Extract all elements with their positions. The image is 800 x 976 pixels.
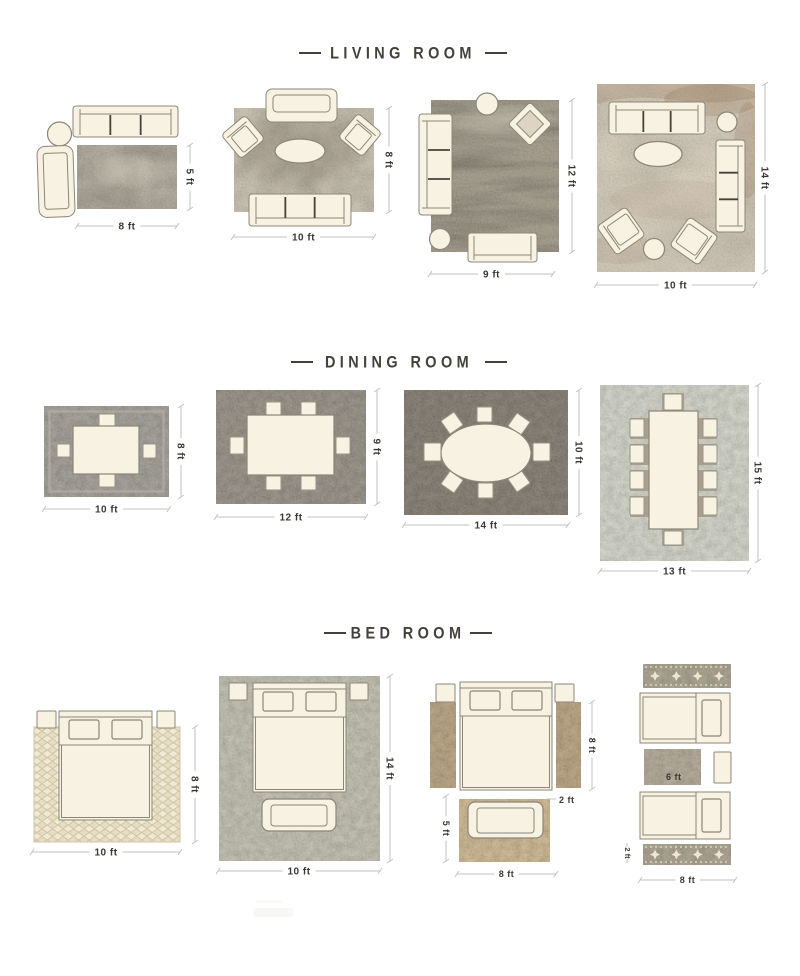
svg-text:15 ft: 15 ft xyxy=(751,461,762,484)
svg-text:14 ft: 14 ft xyxy=(474,521,497,532)
svg-text:8 ft: 8 ft xyxy=(499,869,515,879)
svg-text:6 ft: 6 ft xyxy=(666,772,682,782)
svg-text:5 ft: 5 ft xyxy=(183,169,194,186)
svg-text:BED ROOM: BED ROOM xyxy=(351,624,466,642)
svg-text:12 ft: 12 ft xyxy=(279,513,302,524)
svg-text:10 ft: 10 ft xyxy=(94,848,117,859)
svg-text:8 ft: 8 ft xyxy=(680,875,696,885)
svg-text:14 ft: 14 ft xyxy=(383,757,394,780)
svg-text:8 ft: 8 ft xyxy=(382,152,393,169)
svg-text:12 ft: 12 ft xyxy=(565,164,576,187)
svg-text:9 ft: 9 ft xyxy=(483,270,500,281)
svg-text:8 ft: 8 ft xyxy=(188,776,199,793)
svg-text:10 ft: 10 ft xyxy=(292,233,315,244)
svg-text:2 ft: 2 ft xyxy=(623,847,632,859)
svg-text:10 ft: 10 ft xyxy=(287,867,310,878)
svg-text:8 ft: 8 ft xyxy=(119,222,136,233)
svg-text:10 ft: 10 ft xyxy=(572,441,583,464)
svg-text:10 ft: 10 ft xyxy=(95,505,118,516)
svg-text:9 ft: 9 ft xyxy=(370,439,381,456)
svg-text:13 ft: 13 ft xyxy=(663,567,686,578)
svg-text:14 ft: 14 ft xyxy=(758,166,769,189)
svg-text:8 ft: 8 ft xyxy=(174,443,185,460)
svg-text:2 ft: 2 ft xyxy=(559,795,575,805)
svg-text:10 ft: 10 ft xyxy=(664,281,687,292)
svg-text:DINING ROOM: DINING ROOM xyxy=(325,353,473,371)
svg-text:8 ft: 8 ft xyxy=(587,738,597,754)
svg-text:LIVING ROOM: LIVING ROOM xyxy=(330,44,476,62)
svg-text:5 ft: 5 ft xyxy=(441,821,451,837)
